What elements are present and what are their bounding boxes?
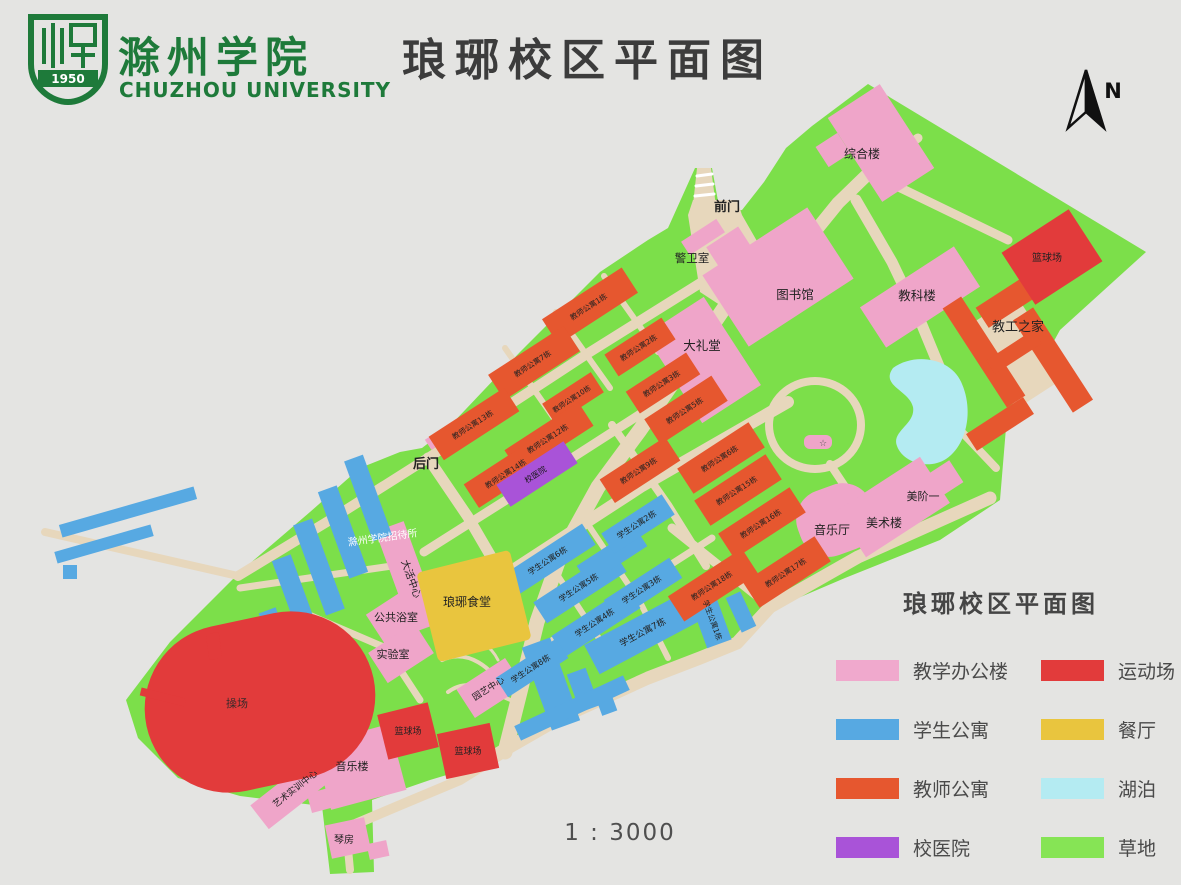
- legend-label: 学生公寓: [913, 716, 989, 743]
- legend-item-3: 校医院: [836, 834, 1041, 861]
- legend-items: 教学办公楼学生公寓教师公寓校医院运动场餐厅湖泊草地: [836, 641, 1181, 877]
- map-label: 前门: [714, 199, 740, 215]
- university-name-en: CHUZHOU UNIVERSITY: [119, 78, 391, 102]
- legend-swatch: [1041, 660, 1104, 681]
- legend-swatch: [836, 778, 899, 799]
- north-arrow-icon: N: [1056, 58, 1128, 138]
- map-scale: 1 : 3000: [505, 820, 735, 846]
- legend-item-4: 运动场: [1041, 657, 1181, 684]
- building-label: 公共浴室: [374, 610, 418, 624]
- road: [696, 184, 713, 186]
- building-label: 音乐楼: [336, 759, 369, 773]
- building-label: 美术楼: [866, 515, 902, 530]
- building-label: 篮球场: [394, 725, 421, 737]
- map-label: 后门: [413, 456, 439, 472]
- legend-item-1: 学生公寓: [836, 716, 1041, 743]
- legend: 琅琊校区平面图 教学办公楼学生公寓教师公寓校医院运动场餐厅湖泊草地: [836, 584, 1181, 877]
- building-label: 教科楼: [898, 288, 936, 303]
- university-name-cn: 滁州学院: [118, 24, 314, 85]
- legend-label: 餐厅: [1118, 716, 1156, 743]
- building-label: 音乐厅: [814, 522, 850, 537]
- legend-label: 校医院: [913, 834, 970, 861]
- page-title: 琅琊校区平面图: [402, 24, 773, 88]
- building-label: 篮球场: [454, 745, 481, 757]
- building-student-apartment: [59, 486, 197, 537]
- legend-label: 教师公寓: [913, 775, 989, 802]
- campus-map-page: 综合楼图书馆教科楼大礼堂警卫室音乐厅美术楼美阶一大活中心公共浴室实验室园艺中心音…: [0, 0, 1181, 885]
- legend-item-2: 教师公寓: [836, 775, 1041, 802]
- map-label: ☆: [819, 439, 827, 449]
- building-label: 大礼堂: [683, 338, 721, 353]
- building-student-apartment: [63, 565, 77, 579]
- legend-swatch: [1041, 778, 1104, 799]
- building-label: 综合楼: [844, 146, 880, 161]
- building-label: 实验室: [377, 647, 410, 661]
- legend-label: 教学办公楼: [913, 657, 1008, 684]
- legend-item-5: 餐厅: [1041, 716, 1181, 743]
- building-label: 琴房: [334, 833, 354, 846]
- legend-label: 草地: [1118, 834, 1156, 861]
- legend-label: 湖泊: [1118, 775, 1156, 802]
- legend-item-0: 教学办公楼: [836, 657, 1041, 684]
- logo-year: 1950: [51, 72, 84, 86]
- legend-label: 运动场: [1118, 657, 1175, 684]
- legend-swatch: [1041, 837, 1104, 858]
- legend-swatch: [836, 837, 899, 858]
- legend-swatch: [836, 660, 899, 681]
- building-label: 琅琊食堂: [443, 594, 491, 609]
- legend-title: 琅琊校区平面图: [836, 584, 1166, 619]
- legend-item-7: 草地: [1041, 834, 1181, 861]
- building-label: 篮球场: [1032, 251, 1062, 264]
- north-label: N: [1104, 79, 1122, 103]
- road: [697, 174, 712, 176]
- road: [695, 194, 714, 196]
- legend-item-6: 湖泊: [1041, 775, 1181, 802]
- building-label: 警卫室: [675, 251, 710, 265]
- building-label: 美阶一: [907, 489, 940, 503]
- map-label: 教工之家: [992, 319, 1044, 335]
- legend-swatch: [836, 719, 899, 740]
- legend-swatch: [1041, 719, 1104, 740]
- university-logo-icon: 1950: [22, 12, 114, 108]
- building-label: 图书馆: [776, 287, 814, 302]
- building-label: 操场: [226, 696, 248, 710]
